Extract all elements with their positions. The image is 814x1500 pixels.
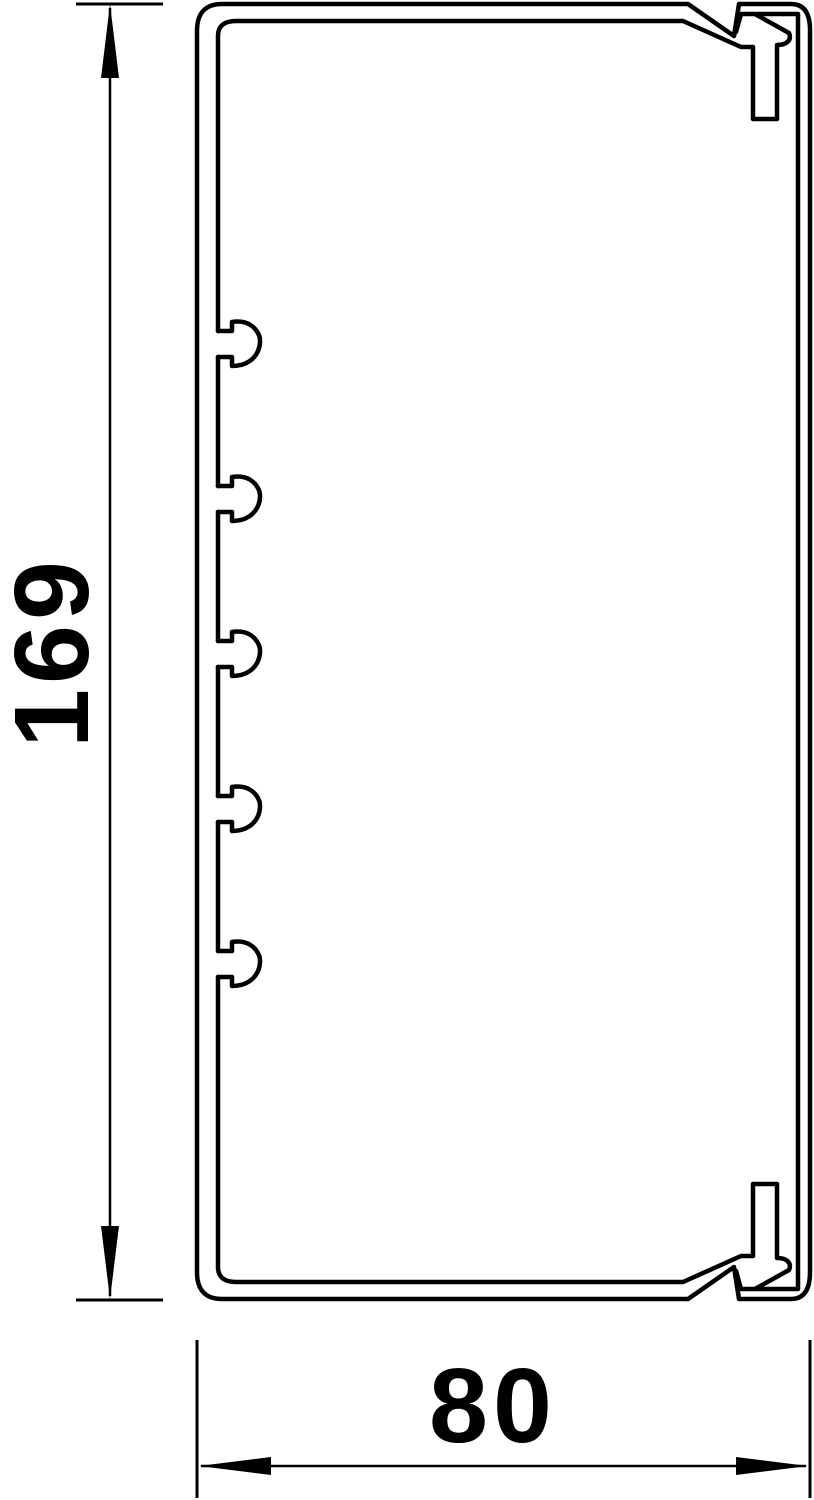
cable-clip-5: [218, 942, 260, 986]
cable-clip-1: [218, 322, 260, 366]
cable-clip-3: [218, 632, 260, 676]
cable-clip-4: [218, 787, 260, 831]
width-arrow-right-icon: [736, 1457, 808, 1475]
inner-right-wall: [757, 14, 798, 1289]
height-dimension-label: 169: [0, 556, 111, 748]
profile-outer-contour: [197, 4, 810, 1299]
cable-clip-2: [218, 477, 260, 521]
trunking-cross-section-drawing: 169 80: [0, 0, 814, 1500]
inner-contour-top: [218, 14, 790, 331]
height-arrow-up-icon: [101, 4, 119, 78]
width-arrow-left-icon: [199, 1457, 271, 1475]
inner-contour-bottom: [218, 977, 790, 1289]
width-dimension-label: 80: [429, 1347, 557, 1465]
height-arrow-down-icon: [101, 1226, 119, 1299]
drawing-canvas: 169 80: [0, 0, 814, 1500]
